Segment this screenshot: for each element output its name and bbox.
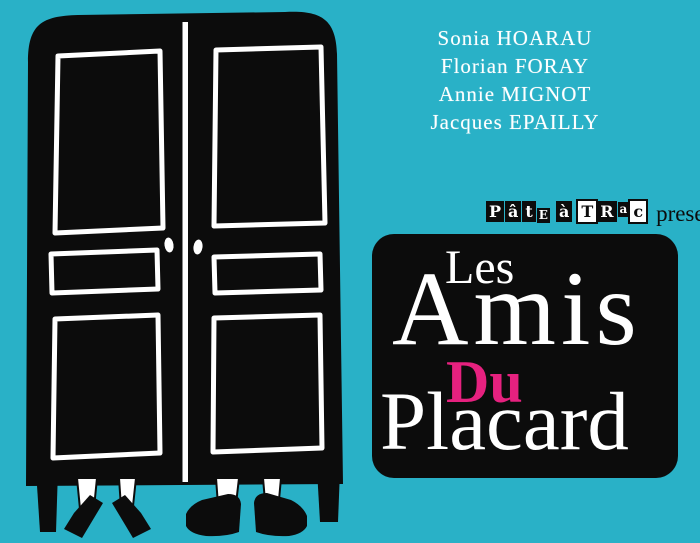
logo-letter-t: t [522,201,535,222]
cast-name-1: Sonia HOARAU [395,24,635,52]
logo-letter-r: R [597,201,616,222]
logo-letter-a2: a [618,202,630,217]
logo-letter-a-grave: à [556,201,572,222]
cast-name-4: Jacques EPAILLY [395,108,635,136]
logo-letter-a-circumflex: â [505,201,521,222]
poster: Sonia HOARAU Florian FORAY Annie MIGNOT … [0,0,700,543]
cast-name-3: Annie MIGNOT [395,80,635,108]
cast-name-2: Florian FORAY [395,52,635,80]
producer-logo: P â t E à T R a c [486,201,647,222]
wardrobe-illustration [0,0,360,543]
logo-letter-p: P [486,201,504,222]
wardrobe-center-divider [183,22,189,482]
cast-list: Sonia HOARAU Florian FORAY Annie MIGNOT … [395,24,635,136]
feet-right-pair [186,478,307,536]
title-word-placard: Placard [380,380,629,463]
feet-left-pair [64,478,151,538]
logo-letter-t2: T [578,201,596,222]
logo-letter-c: c [630,201,646,222]
title-word-amis: Amis [392,256,642,362]
title-card: Les Amis Du Placard [372,234,678,478]
producer-line: P â t E à T R a c presente [486,201,700,231]
presents-label: presente [656,201,700,227]
logo-letter-e: E [537,208,550,223]
